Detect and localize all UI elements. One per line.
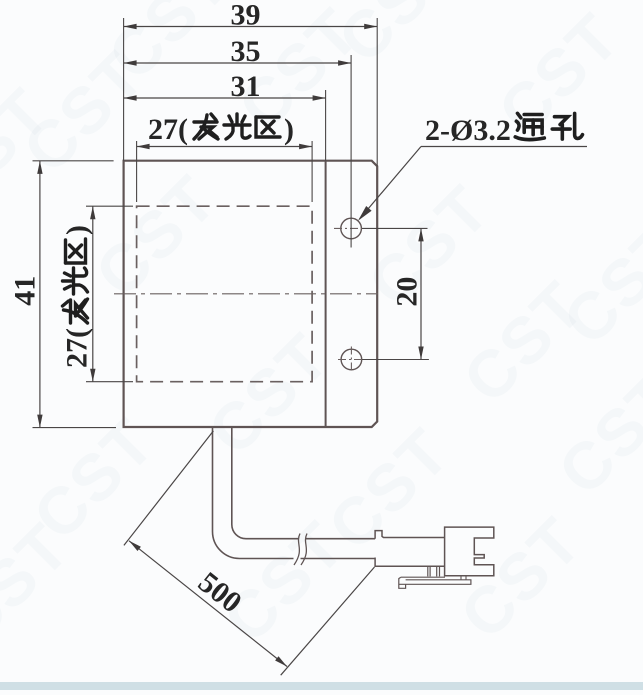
svg-text:35: 35 <box>231 35 261 68</box>
svg-text:20: 20 <box>391 277 424 307</box>
svg-text:41: 41 <box>9 276 42 306</box>
svg-text:31: 31 <box>231 70 261 103</box>
svg-text:39: 39 <box>231 0 261 32</box>
svg-text:): ) <box>61 225 94 235</box>
svg-text:2-Ø3.2: 2-Ø3.2 <box>425 114 511 147</box>
svg-text:27(: 27( <box>148 113 188 146</box>
svg-text:): ) <box>284 113 294 146</box>
svg-text:27(: 27( <box>61 328 94 368</box>
